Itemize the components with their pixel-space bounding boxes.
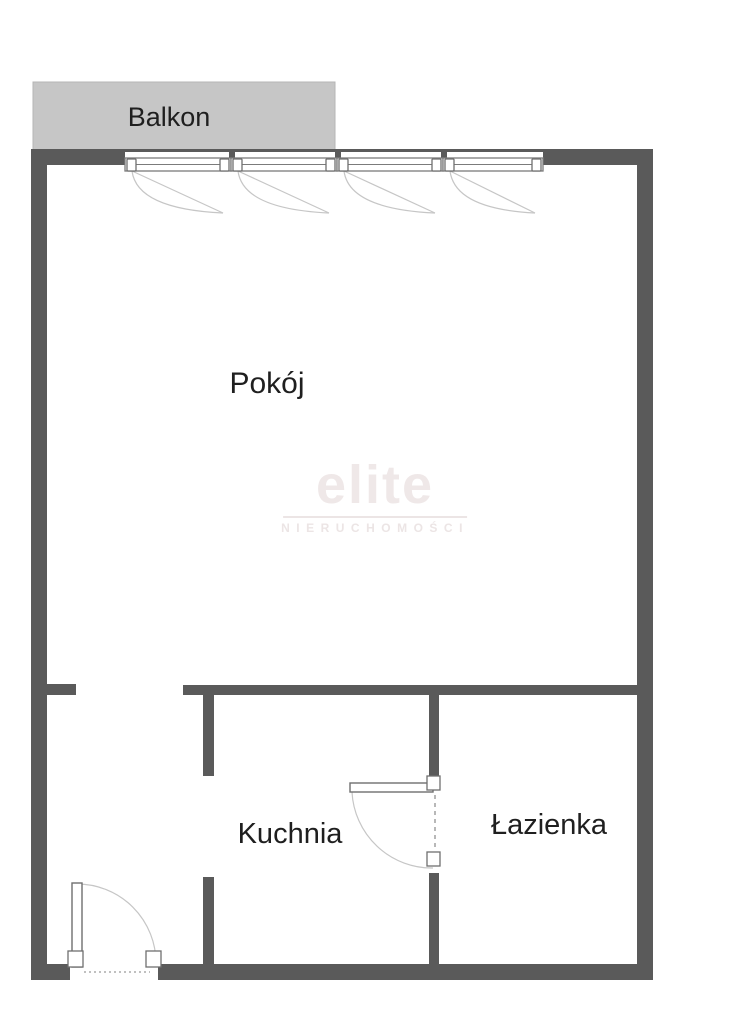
room-label-bathroom: Łazienka	[491, 809, 607, 842]
floor-plan-drawing	[0, 0, 754, 1024]
wall-bathroom-lower	[429, 873, 439, 964]
wall-window-sill-line	[125, 149, 543, 152]
casement-window-icon	[443, 158, 543, 213]
wall-kitchen-left-upper	[203, 695, 214, 776]
wall-left	[31, 149, 47, 980]
casement-window-icon	[337, 158, 443, 213]
bathroom-door-icon	[350, 776, 440, 868]
casement-window-icon	[231, 158, 337, 213]
room-label-kitchen: Kuchnia	[238, 818, 343, 851]
room-label-balcony: Balkon	[128, 102, 211, 133]
wall-interior-horizontal	[183, 685, 637, 695]
wall-hall-stub	[47, 684, 76, 695]
floor-plan: elite NIERUCHOMOŚCI	[0, 0, 754, 1024]
entry-door-icon	[68, 883, 161, 972]
wall-bottom-right-segment	[158, 964, 653, 980]
walls	[31, 149, 653, 980]
wall-top-left-segment	[31, 149, 125, 165]
wall-bottom-left-segment	[31, 964, 70, 980]
wall-bathroom-upper	[429, 695, 439, 778]
wall-kitchen-left-lower	[203, 877, 214, 964]
room-label-living: Pokój	[229, 367, 304, 401]
wall-top-right-segment	[543, 149, 653, 165]
casement-window-icon	[125, 158, 231, 213]
wall-right	[637, 149, 653, 980]
